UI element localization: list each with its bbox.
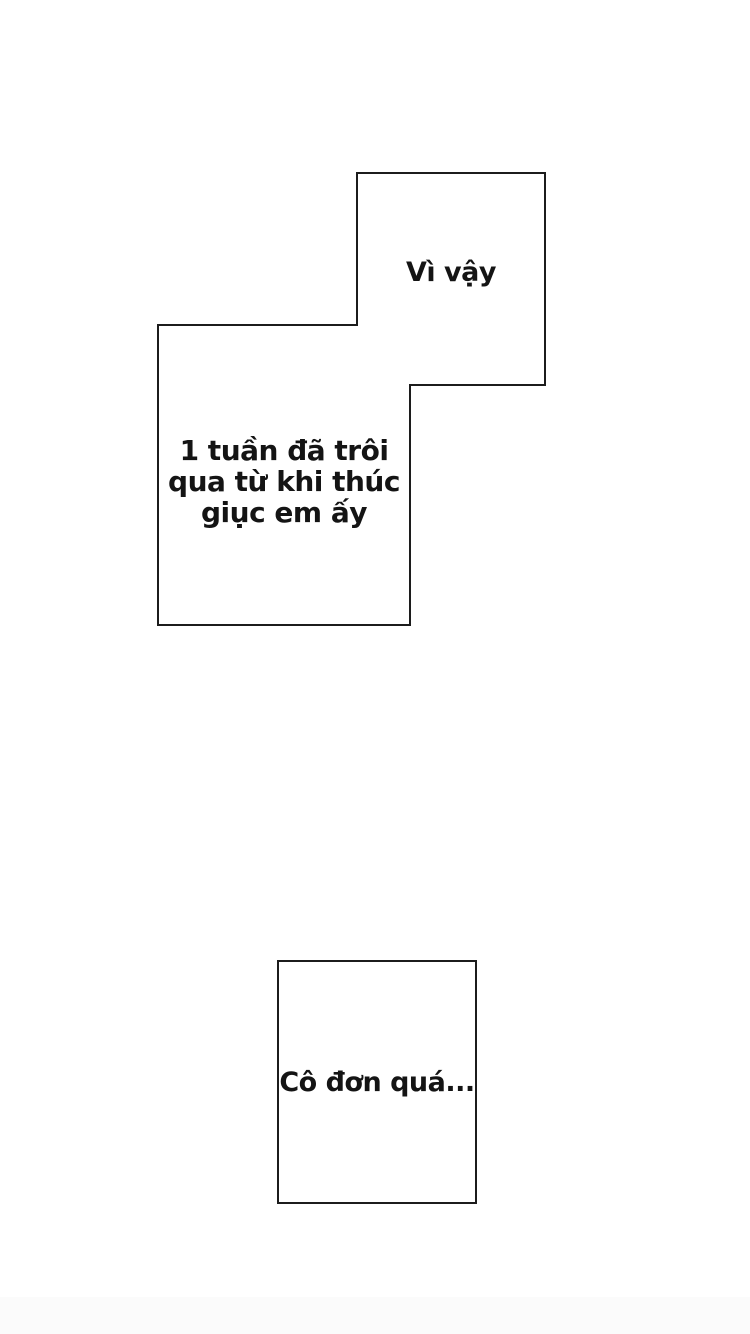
speech-line: giục em ấy xyxy=(201,497,367,528)
speech-line: Vì vậy xyxy=(406,257,496,288)
next-panel-edge xyxy=(0,1297,750,1334)
speech-line: qua từ khi thúc xyxy=(168,466,400,497)
webtoon-page: Vì vậy 1 tuần đã trôi qua từ khi thúc gi… xyxy=(0,0,750,1334)
speech-text-one-week-passed: 1 tuần đã trôi qua từ khi thúc giục em ấ… xyxy=(158,325,410,625)
speech-text-so-lonely: Cô đơn quá... xyxy=(278,961,476,1203)
speech-line: 1 tuần đã trôi xyxy=(180,435,389,466)
speech-line: Cô đơn quá... xyxy=(279,1067,474,1098)
